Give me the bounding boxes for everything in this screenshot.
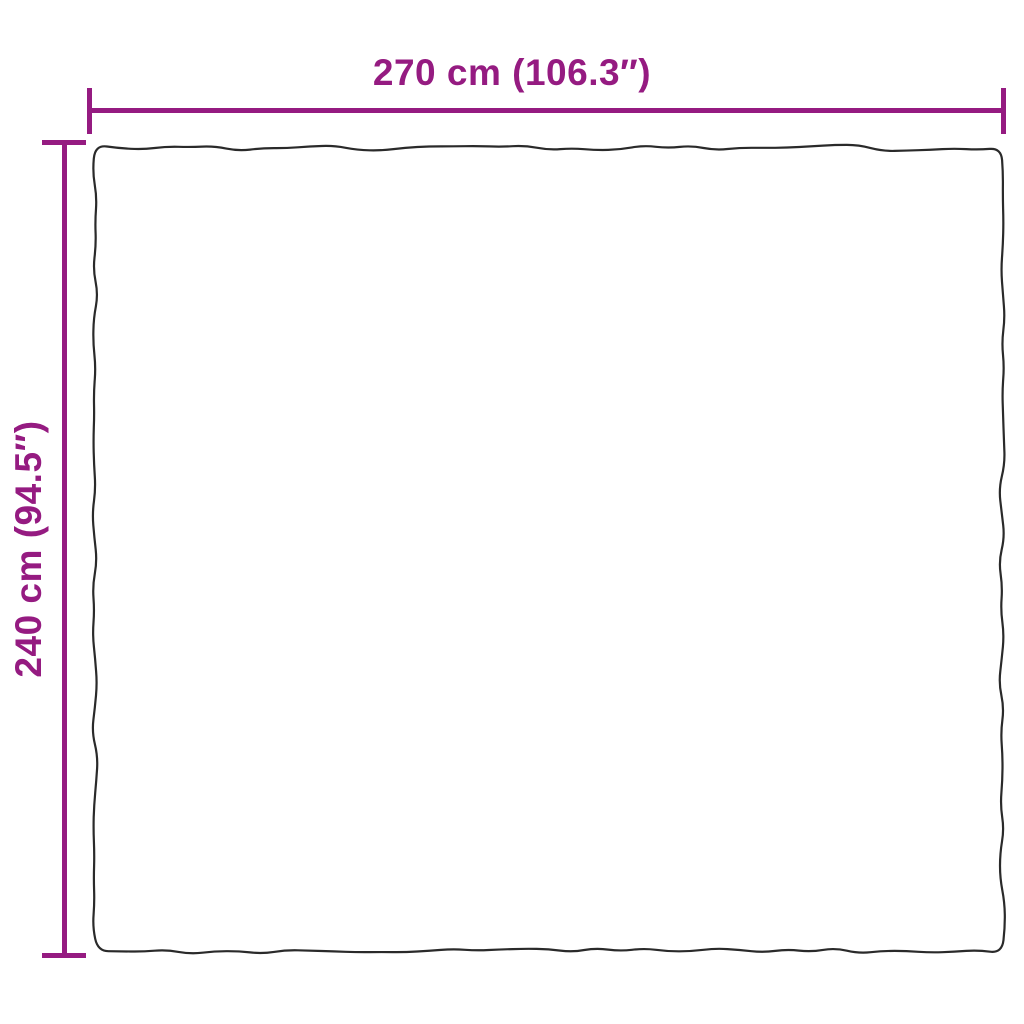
width-dimension-tick-right bbox=[1001, 88, 1006, 134]
width-dimension-tick-left bbox=[87, 88, 92, 134]
width-dimension-line bbox=[89, 108, 1004, 113]
height-dimension-tick-top bbox=[42, 140, 86, 145]
blanket-wavy-edge bbox=[93, 145, 1005, 953]
height-dimension-tick-bottom bbox=[42, 953, 86, 958]
blanket-outline bbox=[0, 0, 1024, 1024]
height-dimension-label: 240 cm (94.5″) bbox=[8, 420, 50, 677]
product-dimension-diagram: 270 cm (106.3″) 240 cm (94.5″) bbox=[0, 0, 1024, 1024]
height-dimension-line bbox=[62, 142, 67, 956]
width-dimension-label: 270 cm (106.3″) bbox=[0, 52, 1024, 94]
